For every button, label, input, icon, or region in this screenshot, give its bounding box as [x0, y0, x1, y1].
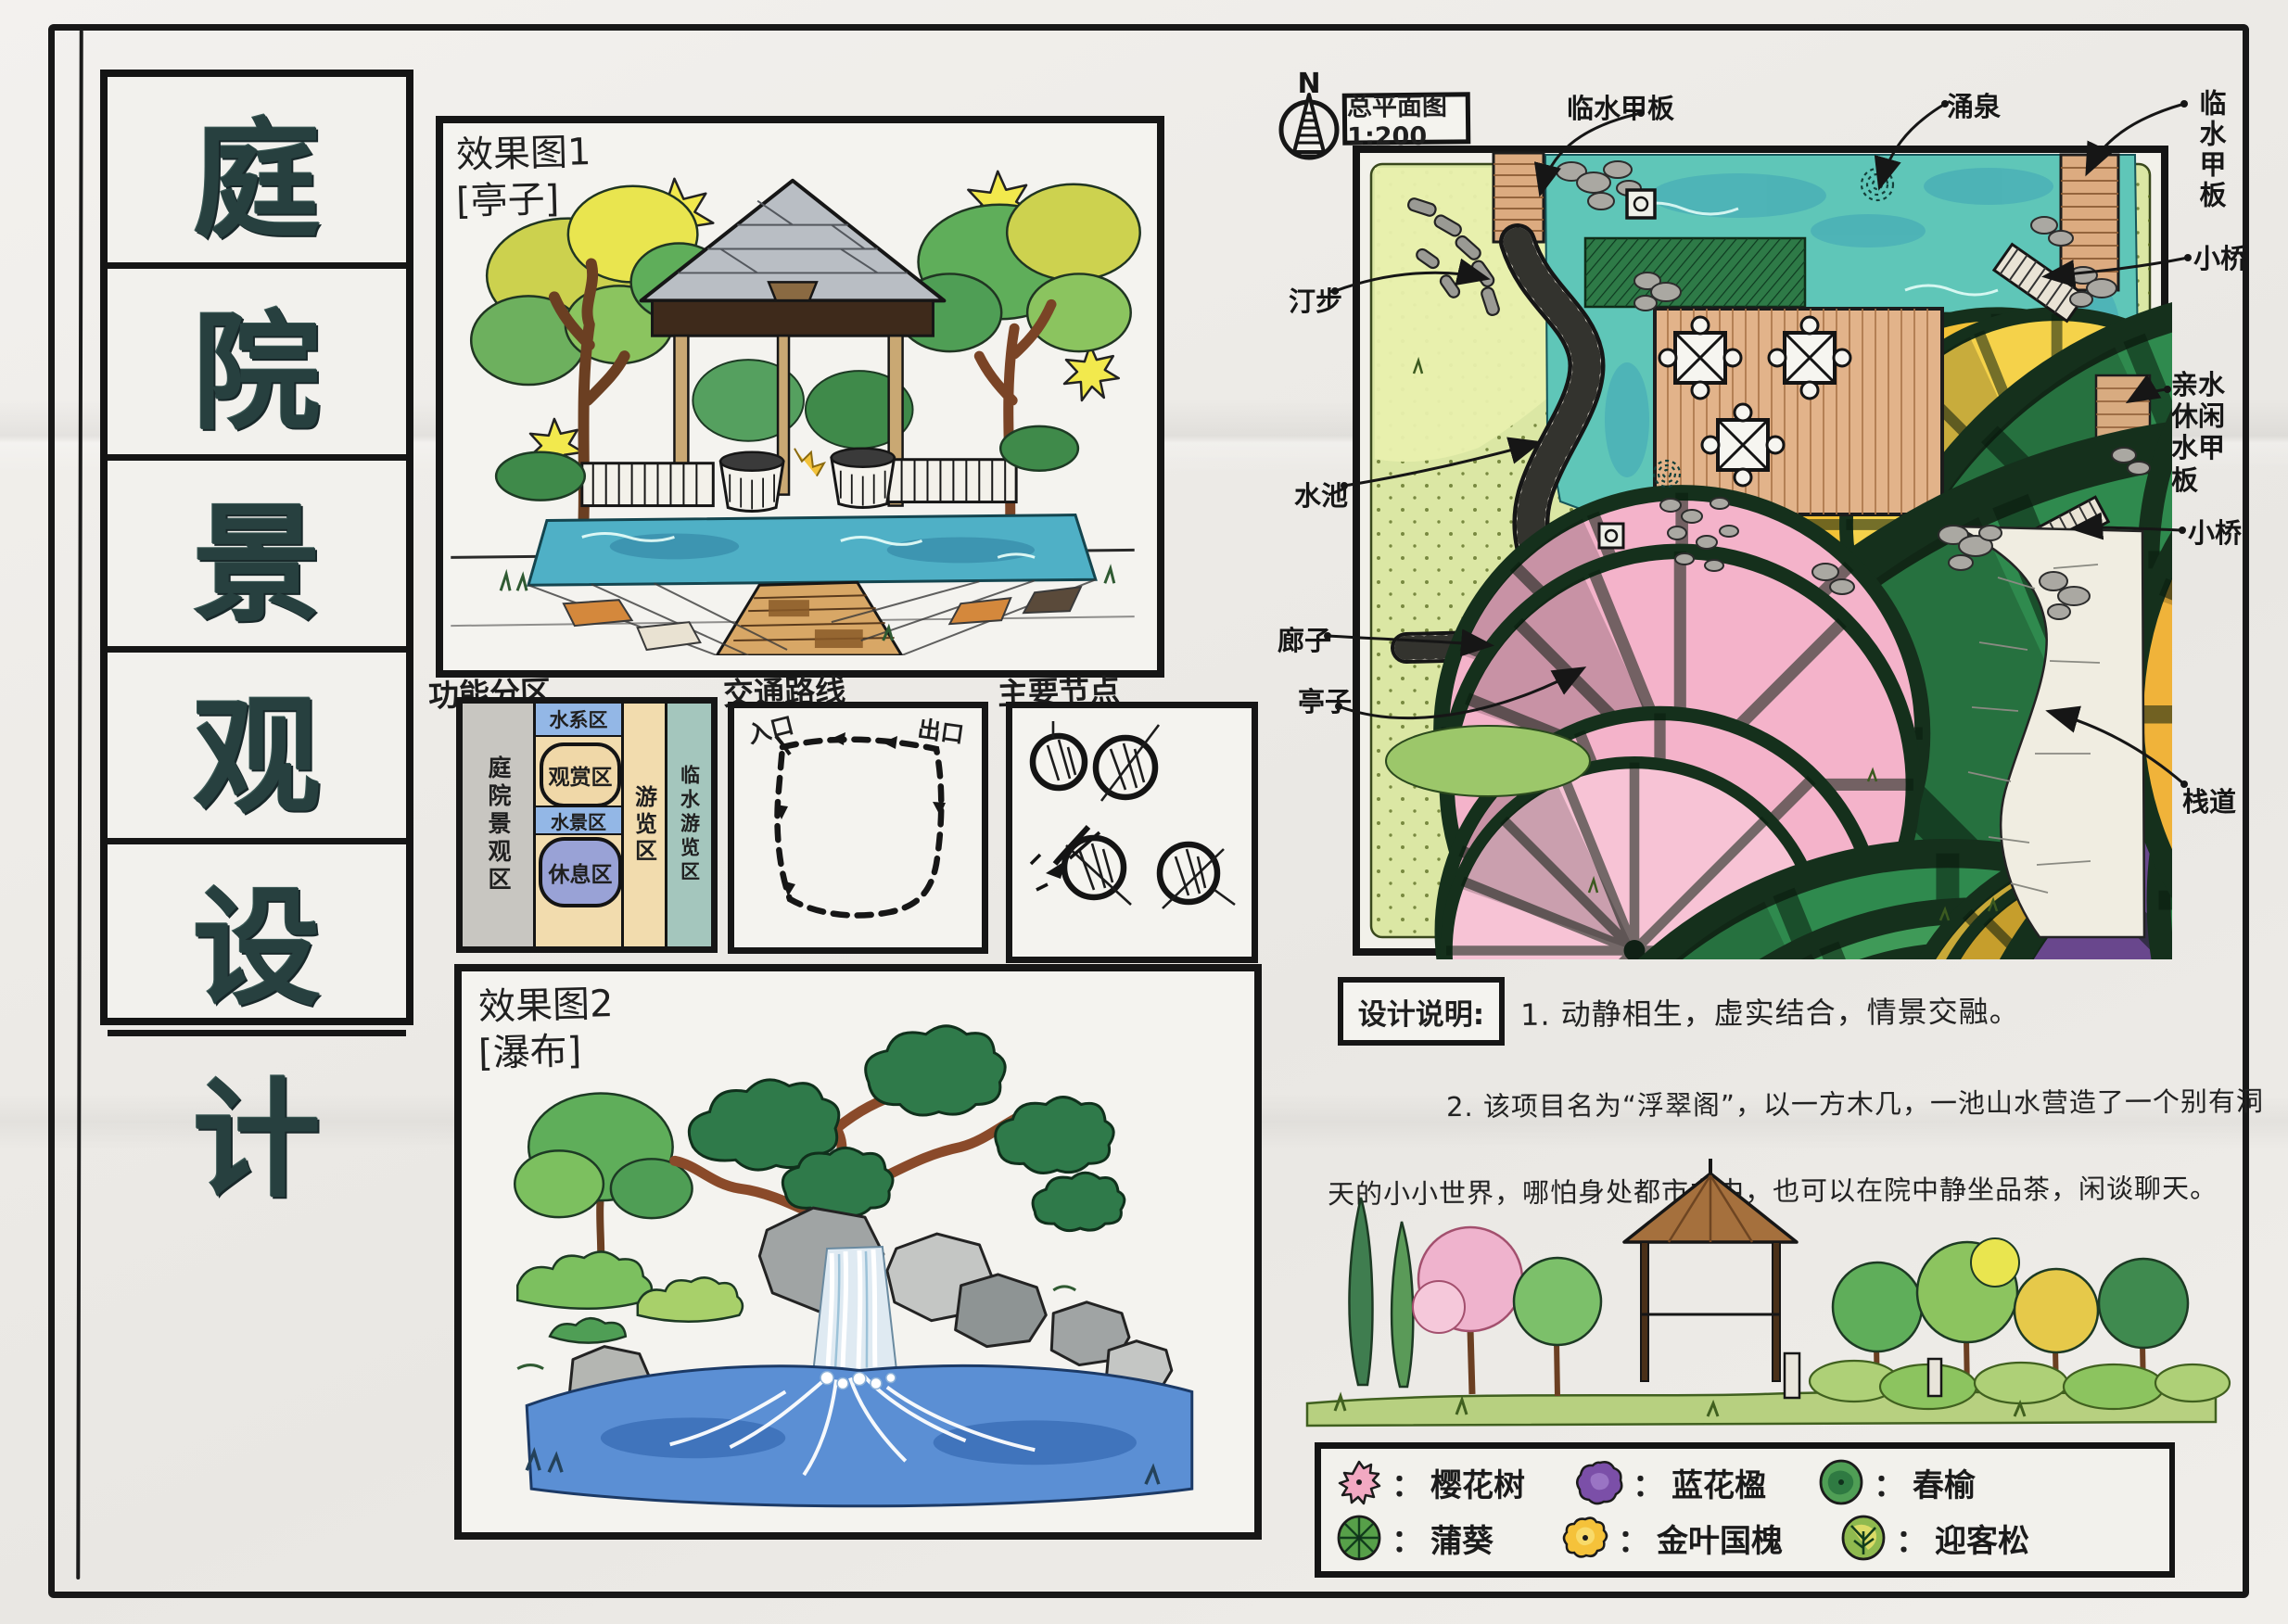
presentation-board: 庭 院 景 观 设 计 效果图1 [亭子]	[0, 0, 2288, 1624]
pool	[528, 515, 1096, 586]
design-notes-label: 设计说明:	[1338, 977, 1505, 1046]
zone-water-view: 水景区	[536, 806, 621, 835]
title-char-box: 计	[108, 1036, 406, 1222]
circulation-diagram: 入口 出口	[728, 702, 988, 954]
label-leisure-deck: 亲水休闲水甲板	[2171, 369, 2236, 496]
title-char-box: 设	[108, 844, 406, 1036]
left-slim-trees	[1349, 1198, 1413, 1387]
label-bridge-1: 小桥	[2193, 237, 2247, 276]
title-char: 景	[193, 461, 321, 646]
title-char: 计	[193, 1036, 321, 1222]
zone-waterside-tour: 临水游览区	[667, 704, 711, 946]
legend-item: ： 金叶国槐	[1560, 1513, 1783, 1563]
effect-drawing-1-title: 效果图1 [亭子]	[456, 131, 591, 223]
label-pavilion: 亭子	[1298, 680, 1352, 719]
label-plank-path: 栈道	[2182, 780, 2236, 819]
legend-row-1: ： 樱花树 ： 蓝花楹 ： 春榆	[1334, 1457, 2162, 1507]
legend-item: ： 春榆	[1816, 1457, 1976, 1507]
label-corridor: 廊子	[1277, 619, 1331, 658]
fan-palm-icon	[1334, 1513, 1384, 1563]
effect-drawing-2-title: 效果图2 [瀑布]	[478, 983, 613, 1075]
gazebo	[1624, 1159, 1797, 1381]
pink-tree	[1413, 1227, 1522, 1394]
spring-elm-icon	[1816, 1457, 1866, 1507]
master-plan-title: 总平面图1:200	[1342, 92, 1471, 145]
effect-drawing-2: 效果图2 [瀑布]	[454, 964, 1262, 1540]
railing	[582, 460, 1016, 506]
label-waterside-deck-right: 临水甲板	[2192, 89, 2231, 211]
zone-middle-column: 水系区 观赏区 水景区 休息区	[536, 704, 624, 946]
label-waterside-deck-top: 临水甲板	[1567, 87, 1674, 126]
title-char-box: 庭	[108, 77, 406, 269]
zone-viewing: 观赏区	[540, 742, 621, 807]
label-pool: 水池	[1294, 475, 1348, 514]
effect-drawing-1: 效果图1 [亭子]	[436, 116, 1164, 678]
label-stepping-stones: 汀步	[1289, 280, 1342, 319]
title-char-box: 观	[108, 653, 406, 844]
planter-bowls	[720, 449, 894, 512]
legend-item: ： 迎客松	[1838, 1513, 2029, 1563]
master-plan	[1349, 142, 2172, 959]
main-title-column: 庭 院 景 观 设 计	[100, 70, 413, 1025]
legend-row-2: ： 蒲葵 ： 金叶国槐 ： 迎客松	[1334, 1513, 2162, 1563]
title-char: 庭	[193, 77, 321, 262]
title-char-box: 景	[108, 461, 406, 653]
plant-legend: ： 樱花树 ： 蓝花楹 ： 春榆	[1315, 1442, 2175, 1578]
zoning-diagram: 庭院景观区 水系区 观赏区 水景区 休息区 游览区 临水游览区	[456, 697, 718, 953]
exit-label: 出口	[916, 711, 967, 751]
title-char: 观	[193, 653, 321, 838]
welcoming-pine-icon	[1838, 1513, 1888, 1563]
elevation-sketch	[1279, 1133, 2234, 1440]
label-spring: 涌泉	[1947, 85, 2001, 124]
design-note-1: 1. 动静相生，虚实结合，情景交融。	[1520, 988, 2020, 1034]
bush	[1386, 726, 1590, 796]
zone-water-system: 水系区	[536, 704, 621, 737]
title-char-box: 院	[108, 269, 406, 461]
nodes-diagram	[1006, 702, 1258, 963]
legend-item: ： 樱花树	[1334, 1457, 1525, 1507]
zone-courtyard: 庭院景观区	[463, 704, 536, 946]
legend-item: ： 蒲葵	[1334, 1513, 1494, 1563]
legend-item: ： 蓝花楹	[1575, 1457, 1766, 1507]
bushes	[517, 1251, 743, 1342]
label-bridge-2: 小桥	[2188, 512, 2242, 551]
title-char: 设	[193, 844, 321, 1030]
north-arrow: N	[1272, 70, 1346, 167]
plunge-pool	[527, 1365, 1192, 1505]
round-tree	[1514, 1258, 1601, 1396]
cherry-blossom-tree-icon	[1334, 1457, 1384, 1507]
hedge-band	[1585, 238, 1805, 307]
zone-tour: 游览区	[624, 704, 667, 946]
jacaranda-icon	[1575, 1457, 1625, 1507]
golden-pagoda-tree-icon	[1560, 1513, 1610, 1563]
nodes-sketch	[1012, 708, 1239, 944]
title-char: 院	[193, 269, 321, 454]
waterfall	[813, 1247, 896, 1373]
wood-walkway	[717, 582, 901, 655]
zone-rest: 休息区	[539, 837, 622, 907]
flame-accent	[794, 449, 824, 476]
left-tree	[515, 1094, 692, 1276]
design-note-2: 2. 该项目名为“浮翠阁”，以一方木几，一池山水营造了一个别有洞	[1446, 1080, 2264, 1124]
pine-foliage	[689, 1026, 1125, 1231]
